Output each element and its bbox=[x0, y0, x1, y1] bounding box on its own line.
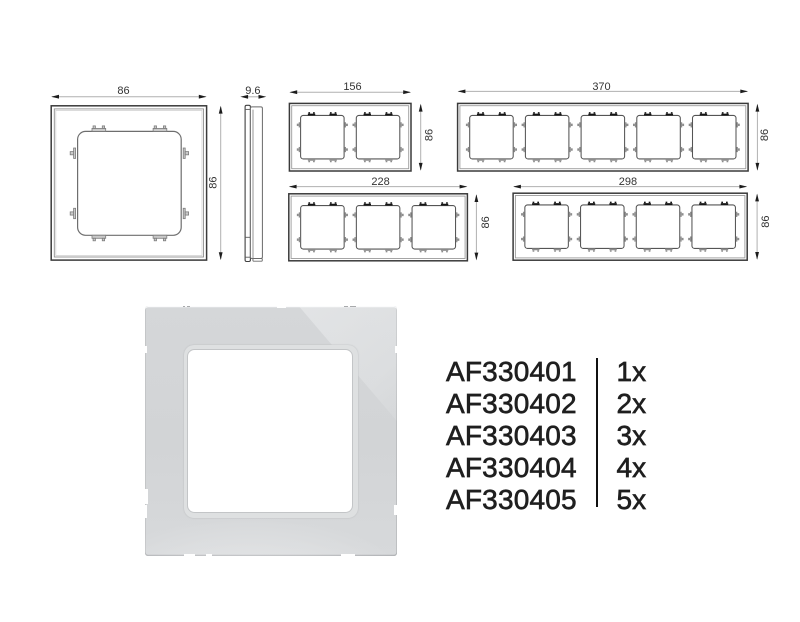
svg-text:86: 86 bbox=[480, 216, 492, 228]
svg-text:370: 370 bbox=[592, 81, 610, 93]
svg-text:156: 156 bbox=[343, 81, 361, 93]
svg-text:86: 86 bbox=[424, 129, 436, 141]
svg-text:298: 298 bbox=[619, 176, 637, 188]
svg-text:228: 228 bbox=[371, 176, 389, 188]
svg-text:86: 86 bbox=[760, 215, 772, 227]
svg-text:9.6: 9.6 bbox=[245, 85, 260, 97]
svg-text:86: 86 bbox=[759, 129, 771, 141]
svg-text:86: 86 bbox=[208, 176, 220, 188]
svg-text:86: 86 bbox=[117, 85, 129, 97]
